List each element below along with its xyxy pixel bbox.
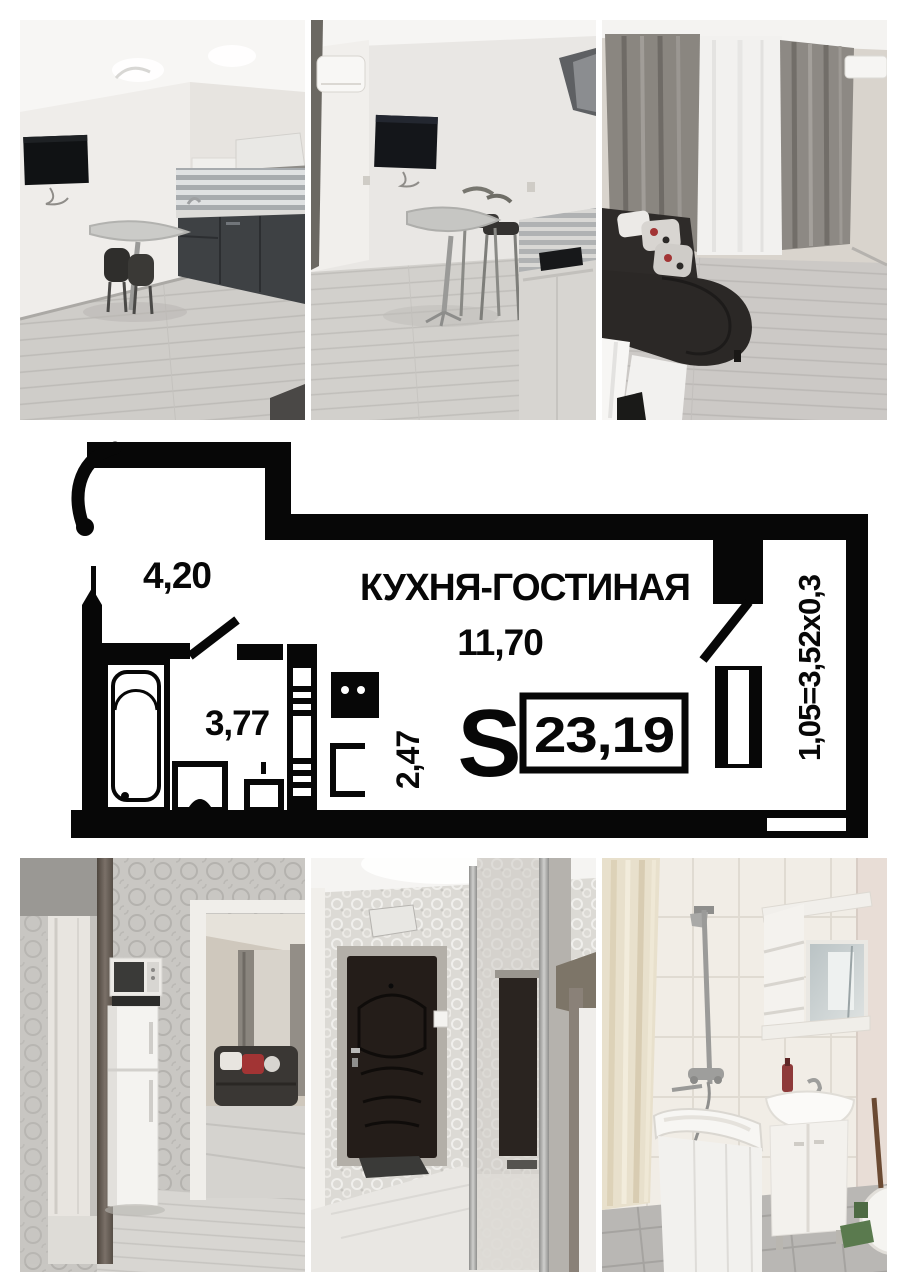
room-area-label: 11,70: [457, 622, 543, 663]
washer-symbol: [331, 672, 379, 718]
fridge-edge: [579, 1008, 596, 1272]
total-area-value: 23,19: [534, 707, 674, 763]
wall-bath-divider: [102, 643, 190, 659]
left-door-jamb: [311, 888, 325, 1250]
ceiling-light-glare: [112, 58, 164, 82]
wall-main-top: [265, 514, 868, 540]
room-sofa: [214, 1046, 298, 1106]
wall-right: [846, 514, 868, 834]
air-conditioner: [317, 56, 365, 92]
tv: [374, 115, 438, 169]
floor: [311, 258, 519, 420]
shower-curtain: [602, 858, 660, 1210]
door-handle: [351, 1048, 360, 1053]
area-symbol: S: [457, 690, 520, 797]
hall-area-label: 4,20: [143, 555, 211, 596]
kitchen-photo-scene: [20, 20, 305, 420]
intercom: [434, 1011, 448, 1027]
cabinet-symbol: [333, 746, 365, 794]
soap-bottle: [782, 1064, 793, 1092]
wall-left: [82, 605, 102, 820]
balcony-bottom-gap: [767, 818, 853, 831]
entrance-photo-scene: [311, 858, 596, 1272]
bathtub-symbol: [105, 662, 167, 810]
photo-hallway-fridge: [20, 858, 305, 1272]
green-box: [854, 1202, 868, 1218]
bathroom-area-label: 3,77: [205, 704, 269, 743]
bathtub: [654, 1109, 762, 1272]
sink-symbol: [175, 764, 225, 810]
microwave: [110, 958, 162, 996]
bottom-photo-row: [20, 858, 887, 1272]
mirror-wardrobe: [469, 858, 571, 1272]
photo-living-room: [602, 20, 887, 420]
door-frame: [190, 900, 206, 1200]
doorway-to-room: [206, 914, 305, 1198]
dining-photo-scene: [311, 20, 596, 420]
tv: [23, 135, 89, 185]
floor-plan-drawing: 4,20 3,77 2,47 КУХНЯ-ГОСТИНАЯ 11,70 S 23…: [65, 430, 868, 840]
door-leaf: [91, 566, 96, 608]
mirror-wardrobe: [20, 858, 97, 1264]
wall-bath-divider-2: [237, 644, 283, 660]
living-room-scene: [602, 20, 887, 420]
door-lock: [352, 1058, 358, 1067]
ceiling-light-glare-2: [208, 45, 256, 67]
hallway-photo-scene: [20, 858, 305, 1272]
mirrored-door-reflection: [499, 976, 537, 1156]
wall-bottom: [71, 810, 868, 838]
floor-plan: 4,20 3,77 2,47 КУХНЯ-ГОСТИНАЯ 11,70 S 23…: [65, 430, 868, 840]
corridor-area-label: 2,47: [390, 731, 426, 789]
fridge: [105, 1006, 165, 1216]
balcony-door-jamb: [713, 540, 763, 604]
backsplash: [176, 168, 305, 214]
outlet: [363, 176, 370, 185]
cabinet-handle: [226, 222, 240, 225]
balcony-dimensions-label: 1,05=3,52х0,3: [792, 574, 827, 761]
peephole: [389, 984, 394, 989]
entry-door: [337, 946, 447, 1166]
photo-entrance-hall: [311, 858, 596, 1272]
photo-kitchen-dining: [20, 20, 305, 420]
photo-bathroom: [602, 858, 887, 1272]
photo-dining-area: [311, 20, 596, 420]
top-photo-row: [20, 20, 887, 420]
shelf-under-microwave: [112, 996, 160, 1006]
air-conditioner: [845, 56, 887, 78]
bathroom-photo-scene: [602, 858, 887, 1272]
outlet-2: [527, 182, 535, 192]
right-curtain: [780, 40, 854, 250]
room-title: КУХНЯ-ГОСТИНАЯ: [360, 567, 690, 609]
collage-canvas: 4,20 3,77 2,47 КУХНЯ-ГОСТИНАЯ 11,70 S 23…: [0, 0, 908, 1280]
